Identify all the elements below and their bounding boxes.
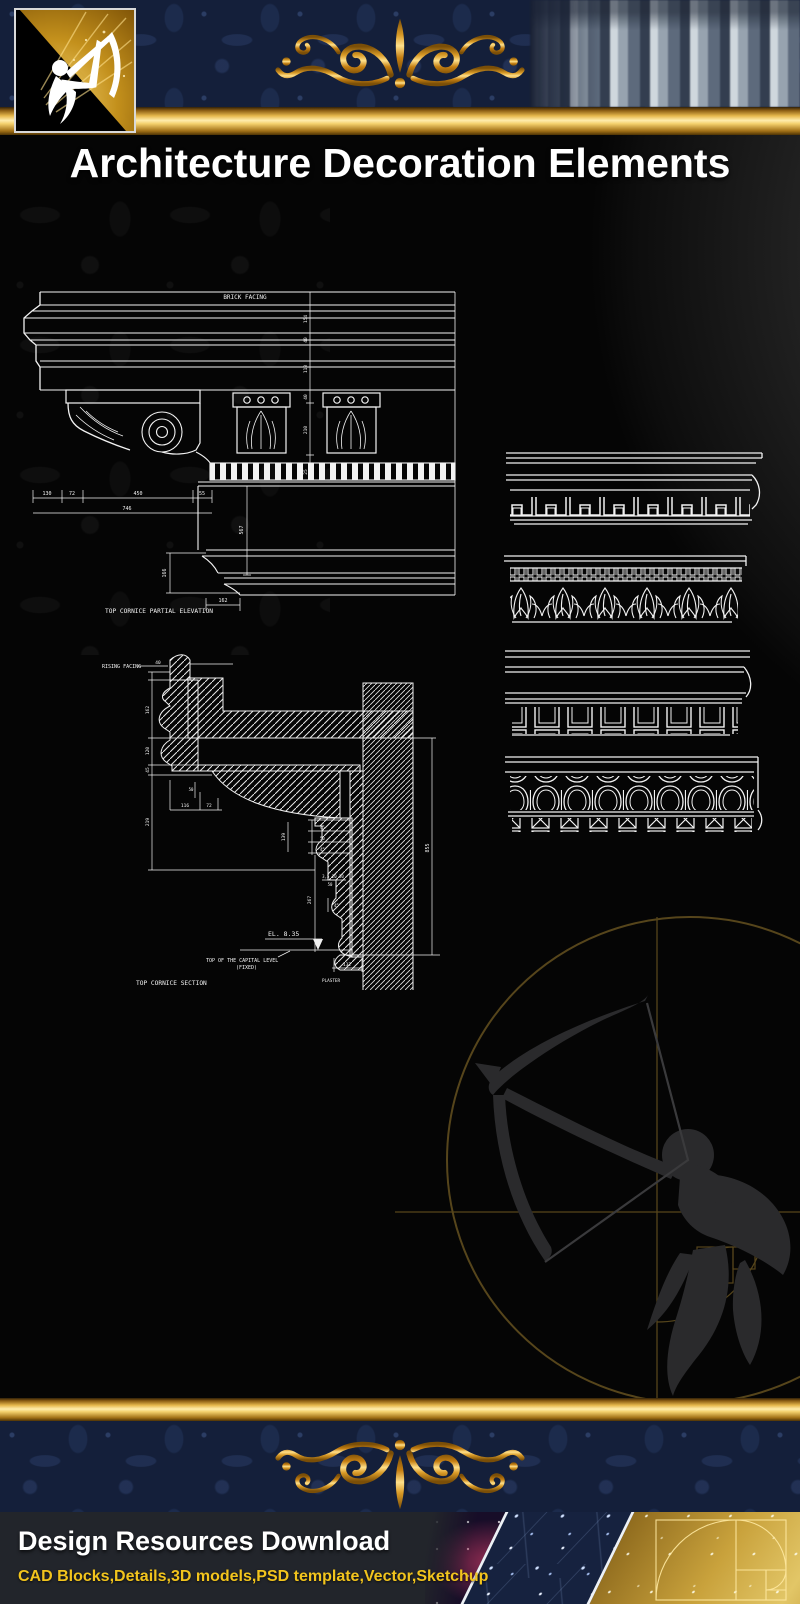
gold-divider-bottom [0,1398,800,1421]
dim-label: 25 [303,469,309,475]
cad-cornice-egg-dart [500,750,765,832]
page-title: Architecture Decoration Elements [0,135,800,191]
dim-label: 450 [133,491,142,497]
note-label: (FIXED) [236,965,257,971]
dim-label: 267 [307,896,313,904]
dim-label: 855 [425,843,431,852]
dim-label: 746 [122,506,131,512]
dim-label: 162 [145,706,151,714]
dim-label: 50 [320,836,325,841]
dim-label: 110 [303,365,309,373]
drawing-caption: TOP CORNICE PARTIAL ELEVATION [105,608,213,615]
archer-logo [14,8,136,133]
dim-label: BRICK FACING [223,294,267,301]
dim-label: 50 [189,787,194,792]
level-label: EL. 8.35 [268,930,299,938]
dim-label: 116 [181,803,189,809]
note-label: PLASTER [322,978,341,984]
dim-label: 40 [303,337,309,343]
note-label: TOP OF THE CAPITAL LEVEL [206,958,278,964]
dim-label: 154 [303,315,309,323]
dim-label: 162 [218,598,227,604]
dim-label: 567 [239,525,245,534]
fleur-ornament-footer-icon [265,1428,535,1516]
dim-label: 139 [281,833,287,841]
archer-logo-icon [16,10,134,131]
dim-label: 120 [145,747,151,755]
columns-photo [530,0,800,107]
dim-label: 210 [303,426,309,434]
dim-label: 45 [334,903,339,908]
dim-label: 3,5 20 30 [322,874,344,879]
cad-elevation-drawing: BRICK FACING 154 40 110 40 210 25 130 72… [10,285,460,617]
poster-root: Architecture Decoration Elements [0,0,800,1604]
cad-cornice-dentil-blocks [500,645,755,740]
dim-label: 166 [162,568,168,577]
dim-label: 55 [199,491,205,497]
dim-label: 40 [155,660,161,666]
title-band: Architecture Decoration Elements [0,135,800,190]
drawing-caption: TOP CORNICE SECTION [136,980,207,987]
dim-label: 45 [145,767,151,773]
dim-label: RISING FACING [102,664,141,670]
footer-heading: Design Resources Download [18,1526,390,1557]
cad-cornice-acanthus [500,550,755,630]
golden-spiral-icon [644,1514,796,1604]
dim-label: 219 [145,818,151,826]
dim-label: 132 [343,962,351,968]
cad-section-drawing: RISING FACING 40 162 120 45 219 116 72 5… [100,640,445,990]
bottom-strip: Design Resources Download CAD Blocks,Det… [0,1512,800,1604]
dim-label: 130 [42,491,51,497]
collage-artwork [425,1512,800,1604]
cad-cornice-meander [500,445,770,540]
dim-label: 72 [69,491,75,497]
dim-label: 72 [206,803,212,809]
dim-label: 40 [303,394,309,400]
dim-label: 45 [320,825,325,830]
archer-watermark [395,915,800,1398]
fleur-ornament-icon [265,12,535,100]
footer-tagline: CAD Blocks,Details,3D models,PSD templat… [18,1568,488,1586]
dim-label: 50 [328,882,333,887]
dim-label: 45 [320,847,325,852]
